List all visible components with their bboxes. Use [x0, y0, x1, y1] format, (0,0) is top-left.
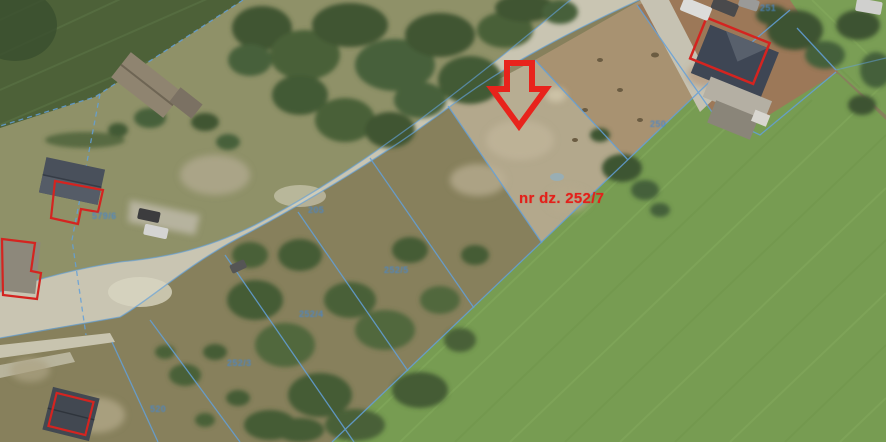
pond-glint: [550, 173, 564, 181]
map-viewport[interactable]: nr dz. 252/7 251250579/6205252/5252/4252…: [0, 0, 886, 442]
aerial-photo: [0, 0, 886, 442]
